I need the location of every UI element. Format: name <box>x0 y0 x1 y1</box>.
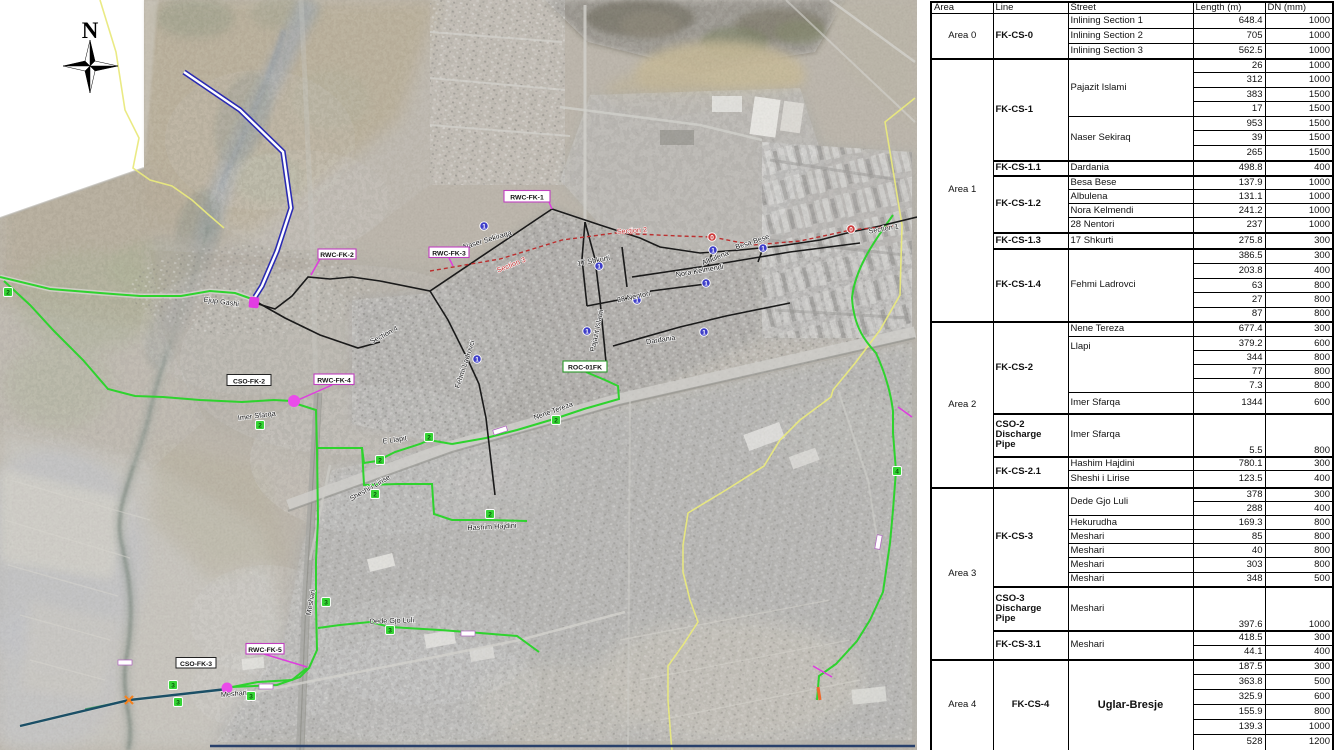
svg-text:RWC-FK-4: RWC-FK-4 <box>317 378 351 385</box>
svg-text:Dede Gjo Luli.: Dede Gjo Luli. <box>370 615 417 626</box>
svg-text:2: 2 <box>488 512 492 519</box>
svg-text:2: 2 <box>373 492 377 499</box>
svg-text:1: 1 <box>475 357 479 364</box>
svg-text:0: 0 <box>849 227 853 234</box>
svg-text:2: 2 <box>378 458 382 465</box>
svg-text:1: 1 <box>585 329 589 336</box>
svg-text:1: 1 <box>704 281 708 288</box>
svg-text:RWC-FK-1: RWC-FK-1 <box>510 195 544 202</box>
svg-text:3: 3 <box>176 700 180 707</box>
svg-text:1: 1 <box>761 246 765 253</box>
svg-text:RWC-FK-2: RWC-FK-2 <box>320 252 354 259</box>
svg-text:ROC-01FK: ROC-01FK <box>568 365 602 372</box>
svg-text:2: 2 <box>6 290 10 297</box>
svg-text:0: 0 <box>710 235 714 242</box>
svg-text:RWC-FK-3: RWC-FK-3 <box>432 251 466 258</box>
svg-text:3: 3 <box>171 683 175 690</box>
svg-text:CSO-FK-3: CSO-FK-3 <box>180 661 212 668</box>
svg-text:1: 1 <box>597 264 601 271</box>
svg-text:3: 3 <box>388 628 392 635</box>
svg-text:4: 4 <box>895 469 899 476</box>
svg-text:3: 3 <box>324 600 328 607</box>
svg-text:N: N <box>82 18 99 43</box>
svg-text:1: 1 <box>702 330 706 337</box>
svg-text:2: 2 <box>427 435 431 442</box>
svg-text:RWC-FK-5: RWC-FK-5 <box>248 647 282 654</box>
svg-text:1: 1 <box>482 224 486 231</box>
svg-text:3: 3 <box>249 694 253 701</box>
svg-text:2: 2 <box>258 423 262 430</box>
svg-text:CSO-FK-2: CSO-FK-2 <box>233 379 265 386</box>
svg-text:2: 2 <box>554 418 558 425</box>
